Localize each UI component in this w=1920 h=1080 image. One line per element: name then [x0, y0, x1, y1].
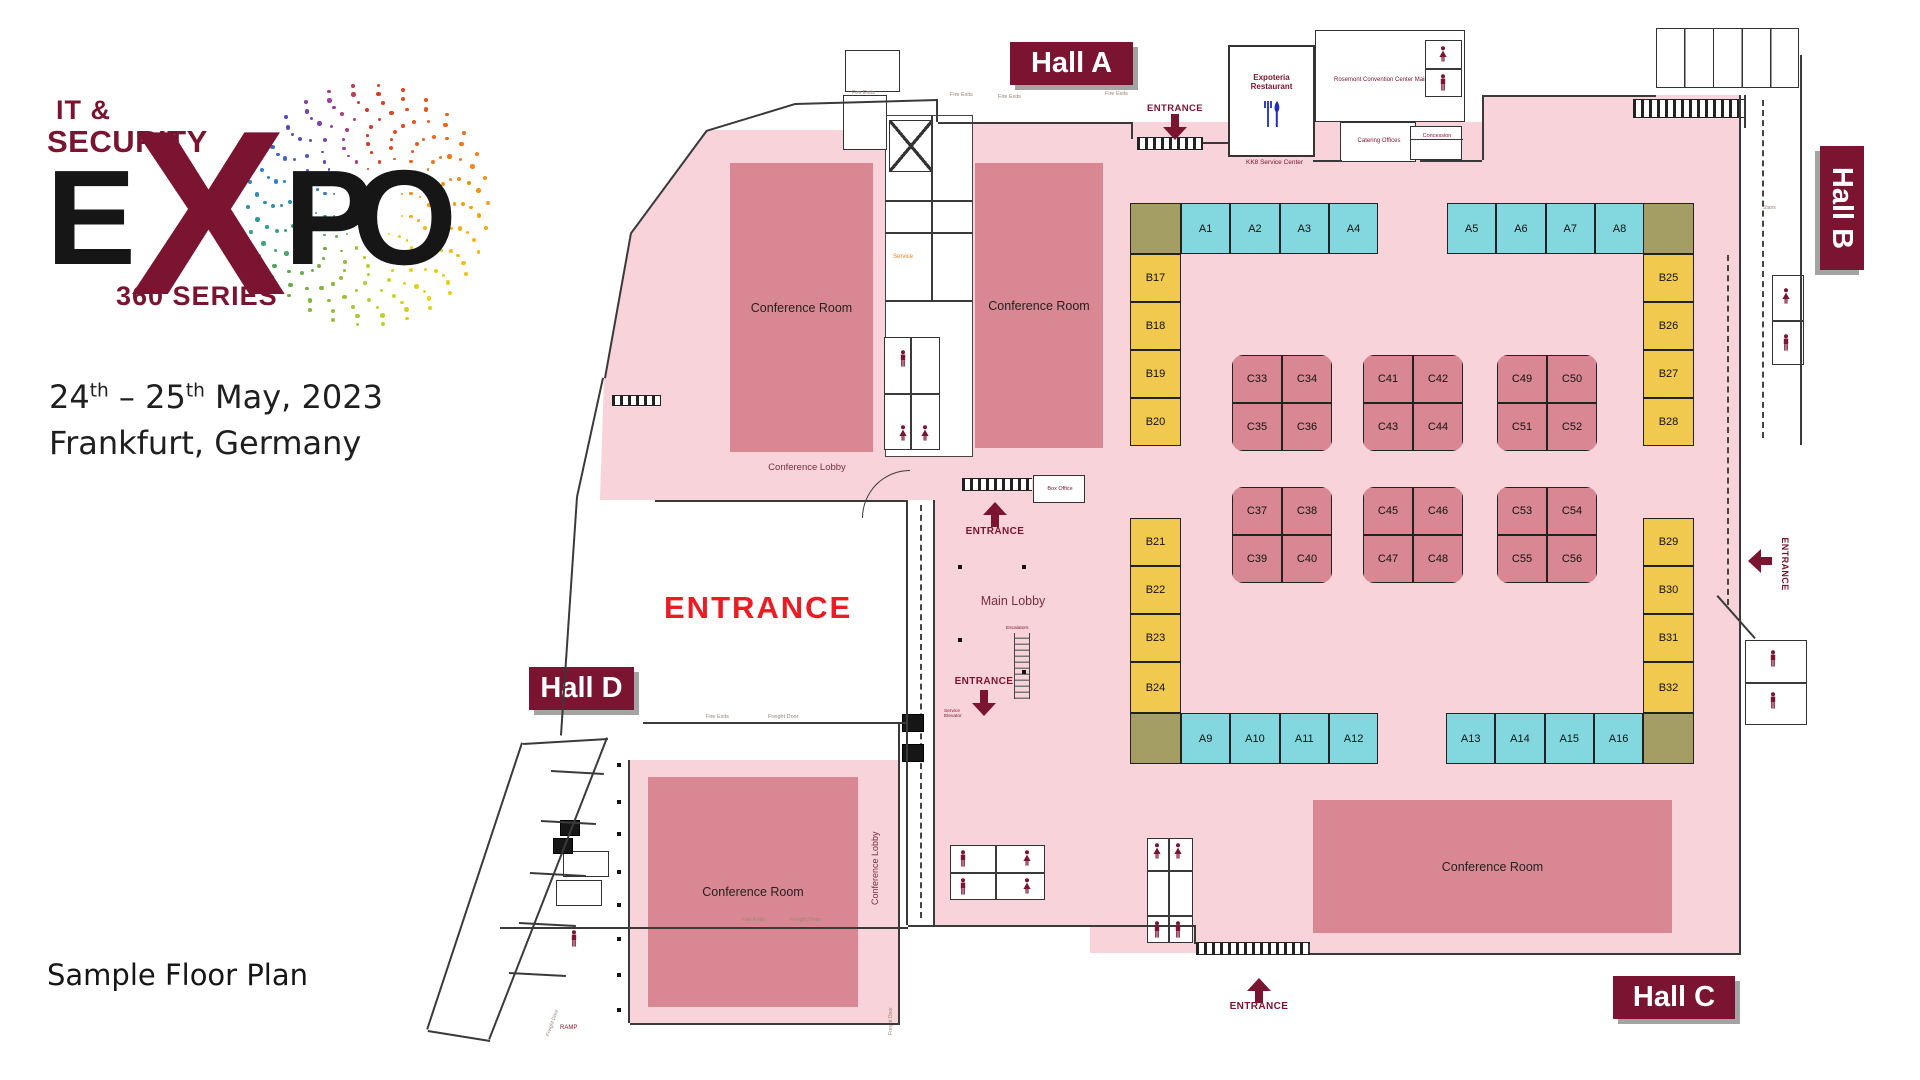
- spiral-dot: [483, 176, 487, 180]
- wall: [1482, 95, 1484, 160]
- catering-label: Catering Offices: [1341, 138, 1417, 144]
- booth-B23: B23: [1130, 614, 1181, 662]
- hall-d-badge: Hall D: [529, 667, 634, 710]
- booth-C45: C45: [1363, 487, 1413, 535]
- spiral-dot: [401, 97, 406, 102]
- fire-exits-label: Fire Exits: [706, 714, 729, 720]
- service-elevator-box: [902, 744, 924, 762]
- hall-c-badge: Hall C: [1613, 976, 1735, 1019]
- booth-A15: A15: [1545, 713, 1594, 764]
- column-dot: [617, 870, 621, 874]
- spiral-dot: [331, 318, 335, 322]
- wall: [931, 115, 933, 300]
- woman-icon: [1173, 843, 1183, 861]
- wall: [428, 1030, 490, 1042]
- conference-room-southeast: Conference Room: [1313, 800, 1672, 933]
- spiral-dot: [400, 301, 403, 304]
- spiral-dot: [401, 124, 404, 127]
- date-day1: 24: [49, 378, 90, 416]
- column-dot: [1022, 670, 1026, 674]
- booth-C55: C55: [1497, 535, 1547, 583]
- booth-A14: A14: [1495, 713, 1544, 764]
- escalator: [1014, 633, 1030, 699]
- spiral-dot: [351, 84, 355, 88]
- spiral-dot: [340, 112, 344, 116]
- corner-block: [1643, 203, 1694, 254]
- woman-icon: [1022, 878, 1032, 896]
- wall: [933, 500, 935, 925]
- booth-C48: C48: [1413, 535, 1463, 583]
- booth-A7: A7: [1546, 203, 1595, 254]
- conference-room-label: Conference Room: [988, 299, 1089, 313]
- woman-icon: [1438, 46, 1448, 64]
- spiral-dot: [366, 134, 369, 137]
- spiral-dot: [342, 295, 346, 299]
- event-date: 24th – 25th May, 2023: [49, 378, 383, 416]
- spiral-dot: [376, 92, 381, 97]
- corner-block: [1130, 203, 1181, 254]
- corridor-dashed-wall: [920, 505, 922, 918]
- ramp-label: RAMP: [560, 1025, 577, 1031]
- entrance-label-east: ENTRANCE: [1780, 518, 1790, 610]
- service-elevator-label: Service Elevator: [944, 709, 974, 720]
- spiral-dot: [459, 158, 462, 161]
- booth-C40: C40: [1282, 535, 1332, 583]
- booth-A8: A8: [1595, 203, 1644, 254]
- date-sup1: th: [90, 380, 109, 401]
- man-icon: [958, 850, 968, 868]
- booth-C33: C33: [1232, 355, 1282, 403]
- spiral-dot: [355, 314, 360, 319]
- logo-letter-o: O: [352, 150, 457, 285]
- booth-C35: C35: [1232, 403, 1282, 451]
- floor-plan-canvas: IT & SECURITY E X P O 360 SERIES 24th – …: [0, 0, 1920, 1080]
- spiral-dot: [353, 118, 356, 121]
- woman-icon: [1781, 288, 1791, 306]
- entrance-label-lobby-south: ENTRANCE: [948, 676, 1020, 687]
- wall: [576, 378, 604, 497]
- column-dot: [617, 937, 621, 941]
- logo-line1: IT &: [56, 95, 111, 126]
- fire-exits-label: Fire Exits: [950, 92, 973, 98]
- booth-B21: B21: [1130, 518, 1181, 566]
- turnstile-lobby: [962, 478, 1032, 491]
- booth-group: C41C42C43C44: [1363, 355, 1463, 451]
- spiral-dot: [389, 111, 393, 115]
- booth-C36: C36: [1282, 403, 1332, 451]
- spiral-dot: [405, 108, 408, 111]
- wall: [655, 500, 908, 502]
- spiral-dot: [467, 181, 470, 184]
- main-lobby-label: Main Lobby: [958, 594, 1068, 608]
- booth-B31: B31: [1643, 614, 1694, 662]
- spiral-dot: [443, 123, 448, 128]
- booth-B18: B18: [1130, 302, 1181, 350]
- column-dot: [617, 1008, 621, 1012]
- wall: [519, 922, 576, 927]
- entrance-arrow-down: [972, 690, 996, 716]
- spiral-dot: [327, 98, 332, 103]
- service-center-label: KK8 Service Center: [1246, 159, 1303, 166]
- wall: [936, 99, 938, 122]
- spiral-dot: [477, 250, 481, 254]
- logo-series: 360 SERIES: [116, 281, 278, 312]
- freight-door-label-mid: Freight Door: [888, 1007, 894, 1035]
- spiral-dot: [378, 118, 381, 121]
- spiral-dot: [308, 308, 312, 312]
- escalators-label: Escalators: [1006, 626, 1028, 631]
- hall-b-badge: Hall B: [1820, 146, 1864, 270]
- wall: [885, 300, 973, 302]
- date-separator: –: [119, 378, 135, 416]
- east-walkway-dashed: [1727, 255, 1729, 605]
- spiral-dot: [392, 294, 396, 298]
- entrance-label-north: ENTRANCE: [1140, 103, 1210, 114]
- spiral-dot: [486, 201, 490, 205]
- booth-B27: B27: [1643, 350, 1694, 398]
- fire-exits-label: Fire Exits: [852, 90, 875, 96]
- spiral-dot: [461, 202, 465, 206]
- spiral-dot: [445, 113, 449, 117]
- column-dot: [958, 638, 962, 642]
- booth-B25: B25: [1643, 254, 1694, 302]
- booth-C47: C47: [1363, 535, 1413, 583]
- spiral-dot: [464, 272, 468, 276]
- wall: [938, 122, 1133, 124]
- spiral-dot: [381, 101, 384, 104]
- spiral-dot: [462, 131, 466, 135]
- wall: [551, 770, 604, 775]
- wall: [910, 337, 912, 450]
- wall: [630, 1023, 900, 1025]
- spiral-dot: [428, 306, 432, 310]
- event-location: Frankfurt, Germany: [49, 424, 361, 462]
- entrance-arrow-left: [1748, 548, 1772, 574]
- spiral-dot: [381, 322, 385, 326]
- man-icon: [1173, 921, 1183, 939]
- date-rest: May, 2023: [215, 378, 383, 416]
- booth-A13: A13: [1446, 713, 1495, 764]
- column-dot: [617, 973, 621, 977]
- column-dot: [617, 763, 621, 767]
- spiral-dot: [369, 125, 373, 129]
- spiral-dot: [459, 142, 464, 147]
- wall: [643, 722, 908, 724]
- wall: [1194, 925, 1196, 944]
- spiral-dot: [330, 125, 333, 128]
- wall: [1147, 870, 1193, 872]
- wall: [1739, 95, 1741, 953]
- booth-C56: C56: [1547, 535, 1597, 583]
- wing-room-a: [563, 851, 609, 877]
- woman-icon: [920, 425, 930, 443]
- woman-icon: [1022, 850, 1032, 868]
- spiral-dot: [332, 106, 335, 109]
- man-icon: [1438, 74, 1448, 92]
- freight-door-label: Freight Door: [768, 714, 799, 720]
- booth-group: C49C50C51C52: [1497, 355, 1597, 451]
- wall: [523, 738, 608, 745]
- booth-C42: C42: [1413, 355, 1463, 403]
- booth-C54: C54: [1547, 487, 1597, 535]
- wall: [1203, 142, 1228, 144]
- wall: [1800, 55, 1802, 445]
- spiral-dot: [310, 117, 313, 120]
- freight-door-label: Freight Door: [790, 917, 821, 923]
- corner-block: [1130, 713, 1181, 764]
- booth-group: C37C38C39C40: [1232, 487, 1332, 583]
- spiral-dot: [317, 121, 321, 125]
- booth-B20: B20: [1130, 398, 1181, 446]
- spiral-dot: [376, 306, 379, 309]
- wall: [1744, 95, 1746, 128]
- wall: [509, 972, 566, 977]
- box-office-label: Box Office: [1034, 486, 1086, 492]
- spiral-dot: [287, 294, 291, 298]
- caption: Sample Floor Plan: [47, 958, 308, 992]
- spiral-dot: [458, 226, 462, 230]
- wall: [1308, 944, 1310, 953]
- spiral-dot: [427, 296, 432, 301]
- conference-room-north: Conference Room: [975, 163, 1103, 448]
- man-icon: [1152, 921, 1162, 939]
- booth-A2: A2: [1230, 203, 1279, 254]
- turnstile-west: [612, 395, 661, 406]
- date-day2: 25: [145, 378, 186, 416]
- booth-C49: C49: [1497, 355, 1547, 403]
- turnstile-south: [1196, 942, 1310, 955]
- man-icon: [958, 878, 968, 896]
- spiral-dot: [342, 138, 345, 141]
- booth-C51: C51: [1497, 403, 1547, 451]
- spiral-dot: [357, 101, 360, 104]
- spiral-dot: [422, 138, 425, 141]
- date-sup2: th: [186, 380, 205, 401]
- spiral-dot: [377, 84, 381, 88]
- booth-B17: B17: [1130, 254, 1181, 302]
- booth-B26: B26: [1643, 302, 1694, 350]
- booth-A5: A5: [1447, 203, 1496, 254]
- woman-icon: [1152, 843, 1162, 861]
- wall: [885, 232, 973, 234]
- stairwell-x: [889, 120, 933, 172]
- booth-B19: B19: [1130, 350, 1181, 398]
- wall: [906, 500, 908, 925]
- corner-block: [1643, 713, 1694, 764]
- spiral-dot: [424, 98, 428, 102]
- topleft-room-b: [843, 95, 887, 150]
- spiral-dot: [367, 298, 371, 302]
- conference-room-label: Conference Room: [702, 885, 803, 899]
- spiral-dot: [351, 305, 354, 308]
- booth-B30: B30: [1643, 566, 1694, 614]
- spiral-dot: [305, 109, 310, 114]
- entrance-arrow-up: [983, 502, 1007, 528]
- spiral-dot: [365, 108, 369, 112]
- spiral-dot: [470, 164, 475, 169]
- conference-room-label: Conference Room: [1442, 860, 1543, 874]
- right-corridor-dashed-wall: [1762, 100, 1764, 438]
- spiral-dot: [304, 100, 308, 104]
- booth-C53: C53: [1497, 487, 1547, 535]
- booth-A9: A9: [1181, 713, 1230, 764]
- wall: [1310, 953, 1741, 955]
- booth-B22: B22: [1130, 566, 1181, 614]
- spiral-dot: [477, 213, 482, 218]
- booth-A16: A16: [1594, 713, 1643, 764]
- column-dot: [958, 565, 962, 569]
- spiral-dot: [466, 231, 469, 234]
- spiral-dot: [461, 261, 466, 266]
- catering-room: Catering Offices: [1340, 122, 1416, 162]
- main-entrance-label: ENTRANCE: [664, 590, 852, 626]
- loading-dock: [1656, 28, 1799, 88]
- entrance-arrow-down: [1163, 114, 1187, 140]
- spiral-dot: [484, 226, 488, 230]
- booth-C44: C44: [1413, 403, 1463, 451]
- stairs-label: Stairs: [1763, 205, 1776, 211]
- wall: [1147, 915, 1193, 917]
- spiral-dot: [445, 137, 448, 140]
- wall: [706, 103, 795, 132]
- booth-B24: B24: [1130, 662, 1181, 713]
- wall: [500, 927, 908, 929]
- booth-C43: C43: [1363, 403, 1413, 451]
- spiral-dot: [291, 133, 294, 136]
- booth-A12: A12: [1329, 713, 1378, 764]
- man-icon: [1781, 334, 1791, 352]
- booth-B28: B28: [1643, 398, 1694, 446]
- spiral-dot: [393, 130, 397, 134]
- booth-C39: C39: [1232, 535, 1282, 583]
- booth-C52: C52: [1547, 403, 1597, 451]
- spiral-dot: [327, 299, 330, 302]
- booth-B32: B32: [1643, 662, 1694, 713]
- spiral-dot: [345, 128, 349, 132]
- spiral-dot: [424, 107, 429, 112]
- wall: [1420, 160, 1482, 162]
- service-label: Service: [893, 254, 913, 260]
- freight-door-label-west: Freight Door: [545, 1009, 560, 1037]
- column-dot: [617, 800, 621, 804]
- wall: [628, 760, 630, 1023]
- booth-A11: A11: [1280, 713, 1329, 764]
- booth-A4: A4: [1329, 203, 1378, 254]
- wing-room-b: [556, 880, 602, 906]
- wall: [885, 200, 973, 202]
- spiral-dot: [432, 135, 436, 139]
- hall-a-badge: Hall A: [1010, 42, 1133, 85]
- man-icon: [1768, 692, 1778, 710]
- wall: [1313, 160, 1342, 162]
- spiral-dot: [351, 92, 356, 97]
- woman-icon: [898, 425, 908, 443]
- spiral-dot: [475, 152, 479, 156]
- spiral-dot: [380, 313, 385, 318]
- wall: [1131, 122, 1133, 139]
- fire-exits-label: Fire Exits: [1105, 91, 1128, 97]
- booth-C37: C37: [1232, 487, 1282, 535]
- restaurant-name-1: Expoteria: [1230, 73, 1313, 82]
- conference-lobby-vertical-label: Conference Lobby: [870, 810, 880, 905]
- conference-lobby-label: Conference Lobby: [752, 462, 862, 473]
- wall: [1482, 95, 1656, 97]
- restaurant-room: Expoteria Restaurant: [1228, 45, 1315, 157]
- column-dot: [617, 903, 621, 907]
- spiral-dot: [401, 88, 405, 92]
- spiral-dot: [327, 90, 331, 94]
- dock-doors: [1633, 99, 1746, 118]
- wall: [950, 872, 1045, 874]
- booth-group: C33C34C35C36: [1232, 355, 1332, 451]
- booth-A10: A10: [1230, 713, 1279, 764]
- spiral-dot: [404, 307, 409, 312]
- utensils-icon: [1261, 99, 1285, 134]
- man-icon: [898, 350, 908, 368]
- restaurant-name-2: Restaurant: [1230, 82, 1313, 91]
- booth-C46: C46: [1413, 487, 1463, 535]
- booth-C50: C50: [1547, 355, 1597, 403]
- wall: [1168, 838, 1170, 943]
- spiral-dot: [331, 309, 336, 314]
- logo-letter-e: E: [46, 150, 136, 285]
- wall: [1772, 320, 1804, 322]
- entrance-arrow-up: [1247, 978, 1271, 1004]
- booth-A3: A3: [1280, 203, 1329, 254]
- spiral-dot: [469, 206, 472, 209]
- spiral-dot: [308, 298, 313, 303]
- spiral-dot: [427, 120, 430, 123]
- spiral-dot: [356, 323, 360, 327]
- booth-group: C45C46C47C48: [1363, 487, 1463, 583]
- fire-exits-label: Fire Exits: [742, 917, 765, 923]
- wall: [898, 722, 900, 1023]
- booth-group: C53C54C55C56: [1497, 487, 1597, 583]
- man-icon: [1768, 650, 1778, 668]
- concession-label: Concession: [1411, 133, 1463, 140]
- wall: [1745, 682, 1807, 684]
- spiral-dot: [405, 317, 409, 321]
- fire-exits-label: Fire Exits: [998, 94, 1021, 100]
- man-icon: [569, 930, 579, 948]
- wall: [1425, 68, 1462, 70]
- column-dot: [1022, 565, 1026, 569]
- conference-room-label: Conference Room: [751, 301, 852, 315]
- booth-C38: C38: [1282, 487, 1332, 535]
- spiral-dot: [412, 120, 416, 124]
- spiral-dot: [298, 137, 302, 141]
- booth-C34: C34: [1282, 355, 1332, 403]
- booth-A1: A1: [1181, 203, 1230, 254]
- concession-room: Concession: [1410, 126, 1462, 160]
- spiral-dot: [476, 188, 481, 193]
- booth-A6: A6: [1496, 203, 1545, 254]
- conference-room-northwest: Conference Room: [730, 163, 873, 452]
- topleft-room-a: [845, 50, 900, 92]
- booth-C41: C41: [1363, 355, 1413, 403]
- spiral-dot: [472, 238, 477, 243]
- spiral-dot: [390, 138, 393, 141]
- spiral-dot: [457, 177, 461, 181]
- conference-room-southwest: Conference Room: [648, 777, 858, 1007]
- booth-B29: B29: [1643, 518, 1694, 566]
- column-dot: [617, 832, 621, 836]
- box-office-room: Box Office: [1033, 475, 1085, 503]
